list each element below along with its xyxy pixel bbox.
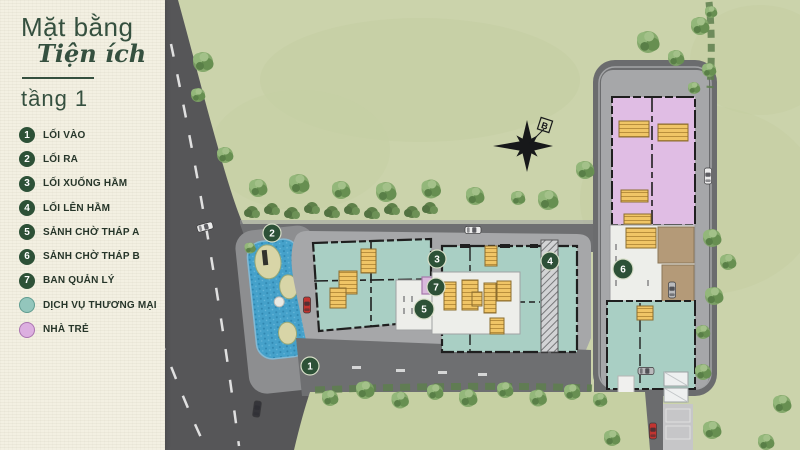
title-line-1: Mặt bằng (21, 14, 165, 41)
legend-zone-kindergarten: NHÀ TRẺ (19, 317, 161, 341)
legend-item-3: 3 LỐI XUỐNG HẦM (19, 172, 161, 196)
legend-item-2: 2 LỐI RA (19, 147, 161, 171)
legend-item-label: LỐI LÊN HẦM (43, 203, 110, 214)
legend: 1 LỐI VÀO 2 LỐI RA 3 LỐI XUỐNG HẦM 4 LỐI… (19, 123, 161, 342)
legend-item-7: 7 BAN QUẢN LÝ (19, 269, 161, 293)
title-line-2: Tiện ích (37, 39, 165, 68)
legend-item-label: BAN QUẢN LÝ (43, 275, 115, 286)
svg-text:1: 1 (307, 362, 313, 373)
plan-marker-7: 7 (427, 278, 445, 296)
legend-item-5: 5 SẢNH CHỜ THÁP A (19, 220, 161, 244)
title-line-3: tầng 1 (21, 86, 165, 112)
legend-item-label: NHÀ TRẺ (43, 324, 89, 335)
legend-item-label: LỐI VÀO (43, 130, 86, 141)
legend-item-1: 1 LỐI VÀO (19, 123, 161, 147)
plan-marker-1: 1 (301, 357, 319, 375)
legend-item-label: LỐI XUỐNG HẦM (43, 178, 127, 189)
legend-item-6: 6 SẢNH CHỜ THÁP B (19, 244, 161, 268)
commercial-zone-swatch (19, 297, 35, 313)
kindergarten-zone-swatch (19, 322, 35, 338)
plan-marker-4: 4 (541, 252, 559, 270)
kindergarten-area (612, 97, 695, 225)
legend-number-badge: 7 (19, 273, 35, 289)
legend-number-badge: 1 (19, 127, 35, 143)
legend-number-badge: 4 (19, 200, 35, 216)
legend-item-label: LỐI RA (43, 154, 78, 165)
parking-strip (663, 404, 693, 450)
svg-text:6: 6 (620, 265, 626, 276)
title-divider (22, 77, 94, 79)
svg-text:5: 5 (421, 305, 427, 316)
legend-item-4: 4 LỐI LÊN HẦM (19, 196, 161, 220)
legend-number-badge: 3 (19, 176, 35, 192)
legend-number-badge: 5 (19, 224, 35, 240)
legend-item-label: DỊCH VỤ THƯƠNG MẠI (43, 300, 157, 311)
svg-text:3: 3 (434, 255, 440, 266)
plan-marker-3: 3 (428, 250, 446, 268)
plan-marker-5: 5 (414, 299, 434, 319)
plan-title: Mặt bằng Tiện ích tầng 1 (0, 0, 165, 112)
legend-item-label: SẢNH CHỜ THÁP A (43, 227, 140, 238)
site-plan-page: B 1 2 3 4 5 (0, 0, 800, 450)
svg-text:2: 2 (269, 229, 275, 240)
legend-zone-commercial: DỊCH VỤ THƯƠNG MẠI (19, 293, 161, 317)
plan-marker-6: 6 (613, 259, 633, 279)
legend-number-badge: 6 (19, 249, 35, 265)
legend-panel: Mặt bằng Tiện ích tầng 1 1 LỐI VÀO 2 LỐI… (0, 0, 165, 450)
legend-number-badge: 2 (19, 151, 35, 167)
plan-marker-2: 2 (263, 224, 281, 242)
svg-text:4: 4 (547, 257, 553, 268)
svg-text:7: 7 (433, 283, 439, 294)
legend-item-label: SẢNH CHỜ THÁP B (43, 251, 140, 262)
